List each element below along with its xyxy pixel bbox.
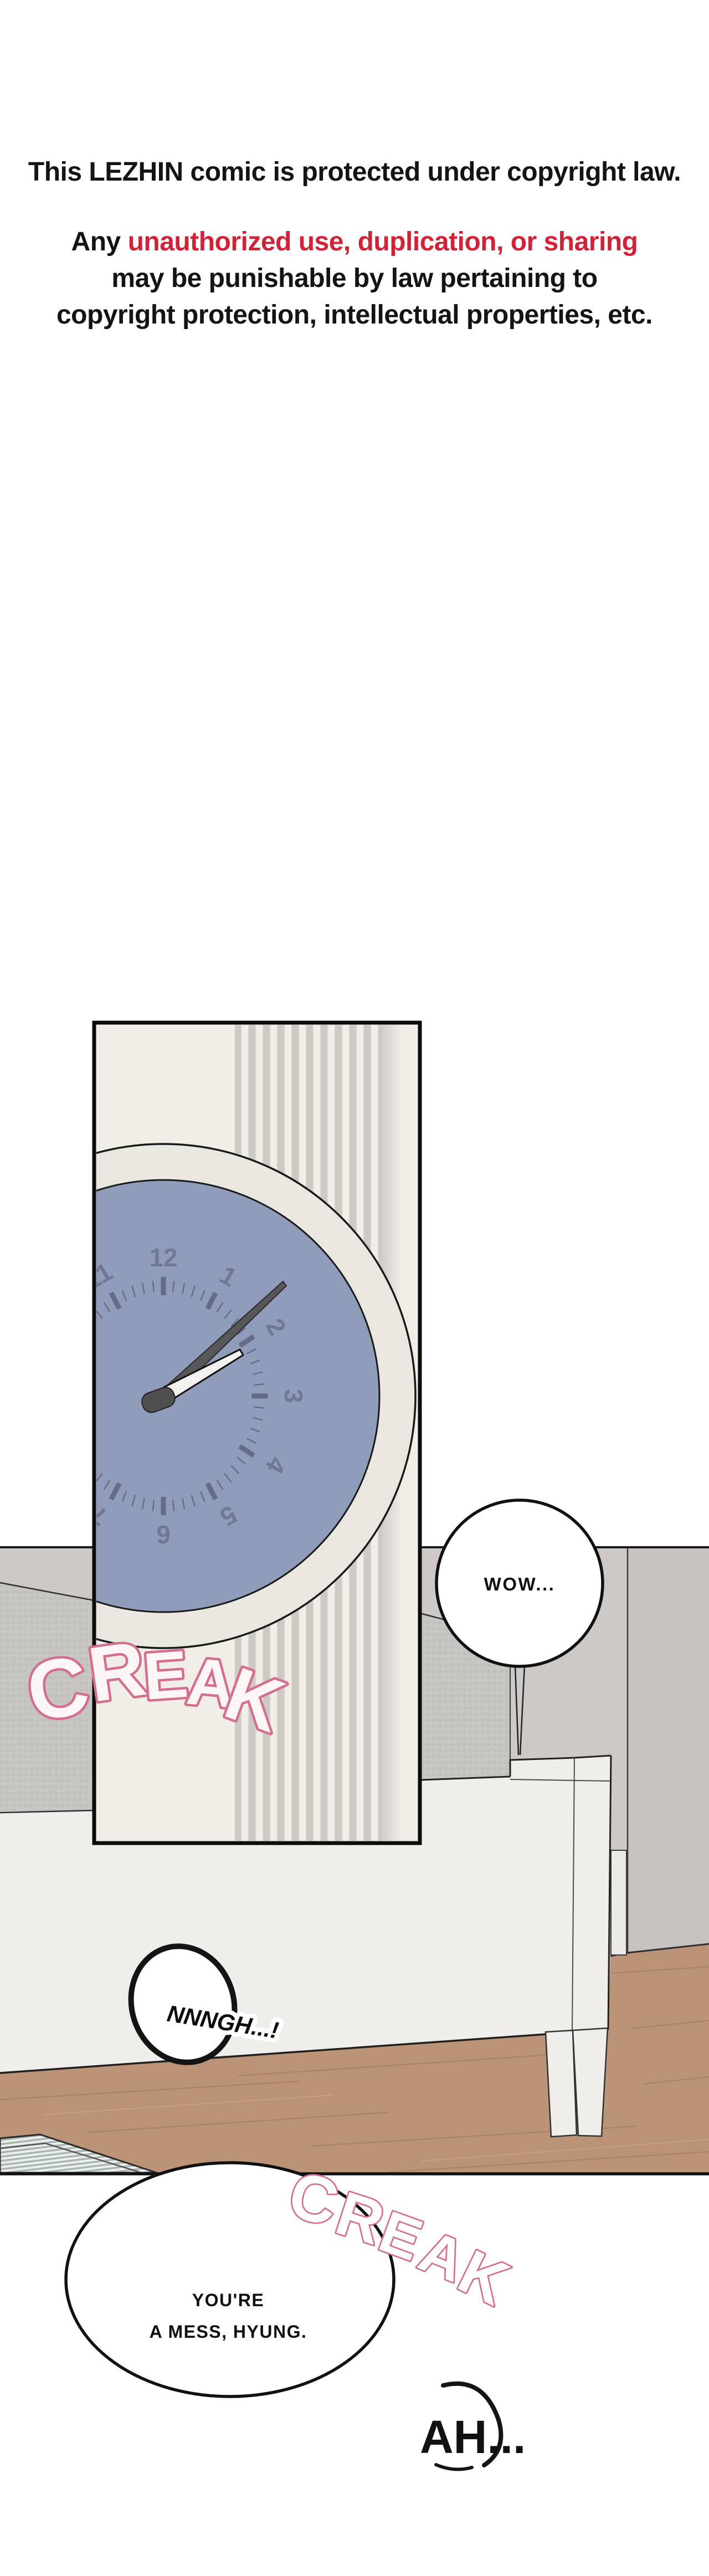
bubble-text-mess-2: A MESS, HYUNG. <box>150 2322 307 2342</box>
comic-artwork: 121234567891011 C R E A K WOW... <box>0 0 709 2576</box>
clock-minute-tick <box>81 1328 90 1335</box>
clock-hour-tick <box>73 1446 87 1456</box>
clock-minute-tick <box>64 1372 74 1374</box>
clock-number: 9 <box>19 1389 48 1403</box>
clock-hour-tick <box>73 1336 87 1346</box>
clock-minute-tick <box>71 1349 80 1354</box>
bed-leg-right <box>573 2028 608 2136</box>
clock-minute-tick <box>81 1458 90 1464</box>
sfx-letter: R <box>83 1624 151 1718</box>
clock-number: 10 <box>31 1307 70 1346</box>
bubble-text-ah: AH... <box>420 2411 526 2463</box>
clock-minute-tick <box>63 1384 73 1385</box>
clock-minute-tick <box>71 1439 80 1444</box>
bubble-arc-bottom <box>436 2465 472 2470</box>
clock-minute-tick <box>67 1360 76 1363</box>
comic-page: This LEZHIN comic is protected under cop… <box>0 0 709 2576</box>
clock-minute-tick <box>64 1418 74 1420</box>
door-jamb <box>611 1850 626 1955</box>
bubble-text-mess-1: YOU'RE <box>192 2290 264 2310</box>
bubble-text-wow: WOW... <box>484 1574 556 1594</box>
clock-number: 3 <box>279 1389 308 1403</box>
bed-leg-left <box>546 2030 577 2137</box>
hallway-wall <box>628 1547 709 1957</box>
clock-minute-tick <box>67 1428 76 1431</box>
clock-number: 12 <box>149 1243 177 1272</box>
clock-number: 6 <box>156 1520 171 1549</box>
sfx-letter: E <box>141 1637 190 1714</box>
clock-number: 8 <box>35 1452 67 1479</box>
clock-minute-tick <box>63 1407 73 1408</box>
speech-bubble-ah: AH... <box>420 2384 526 2470</box>
